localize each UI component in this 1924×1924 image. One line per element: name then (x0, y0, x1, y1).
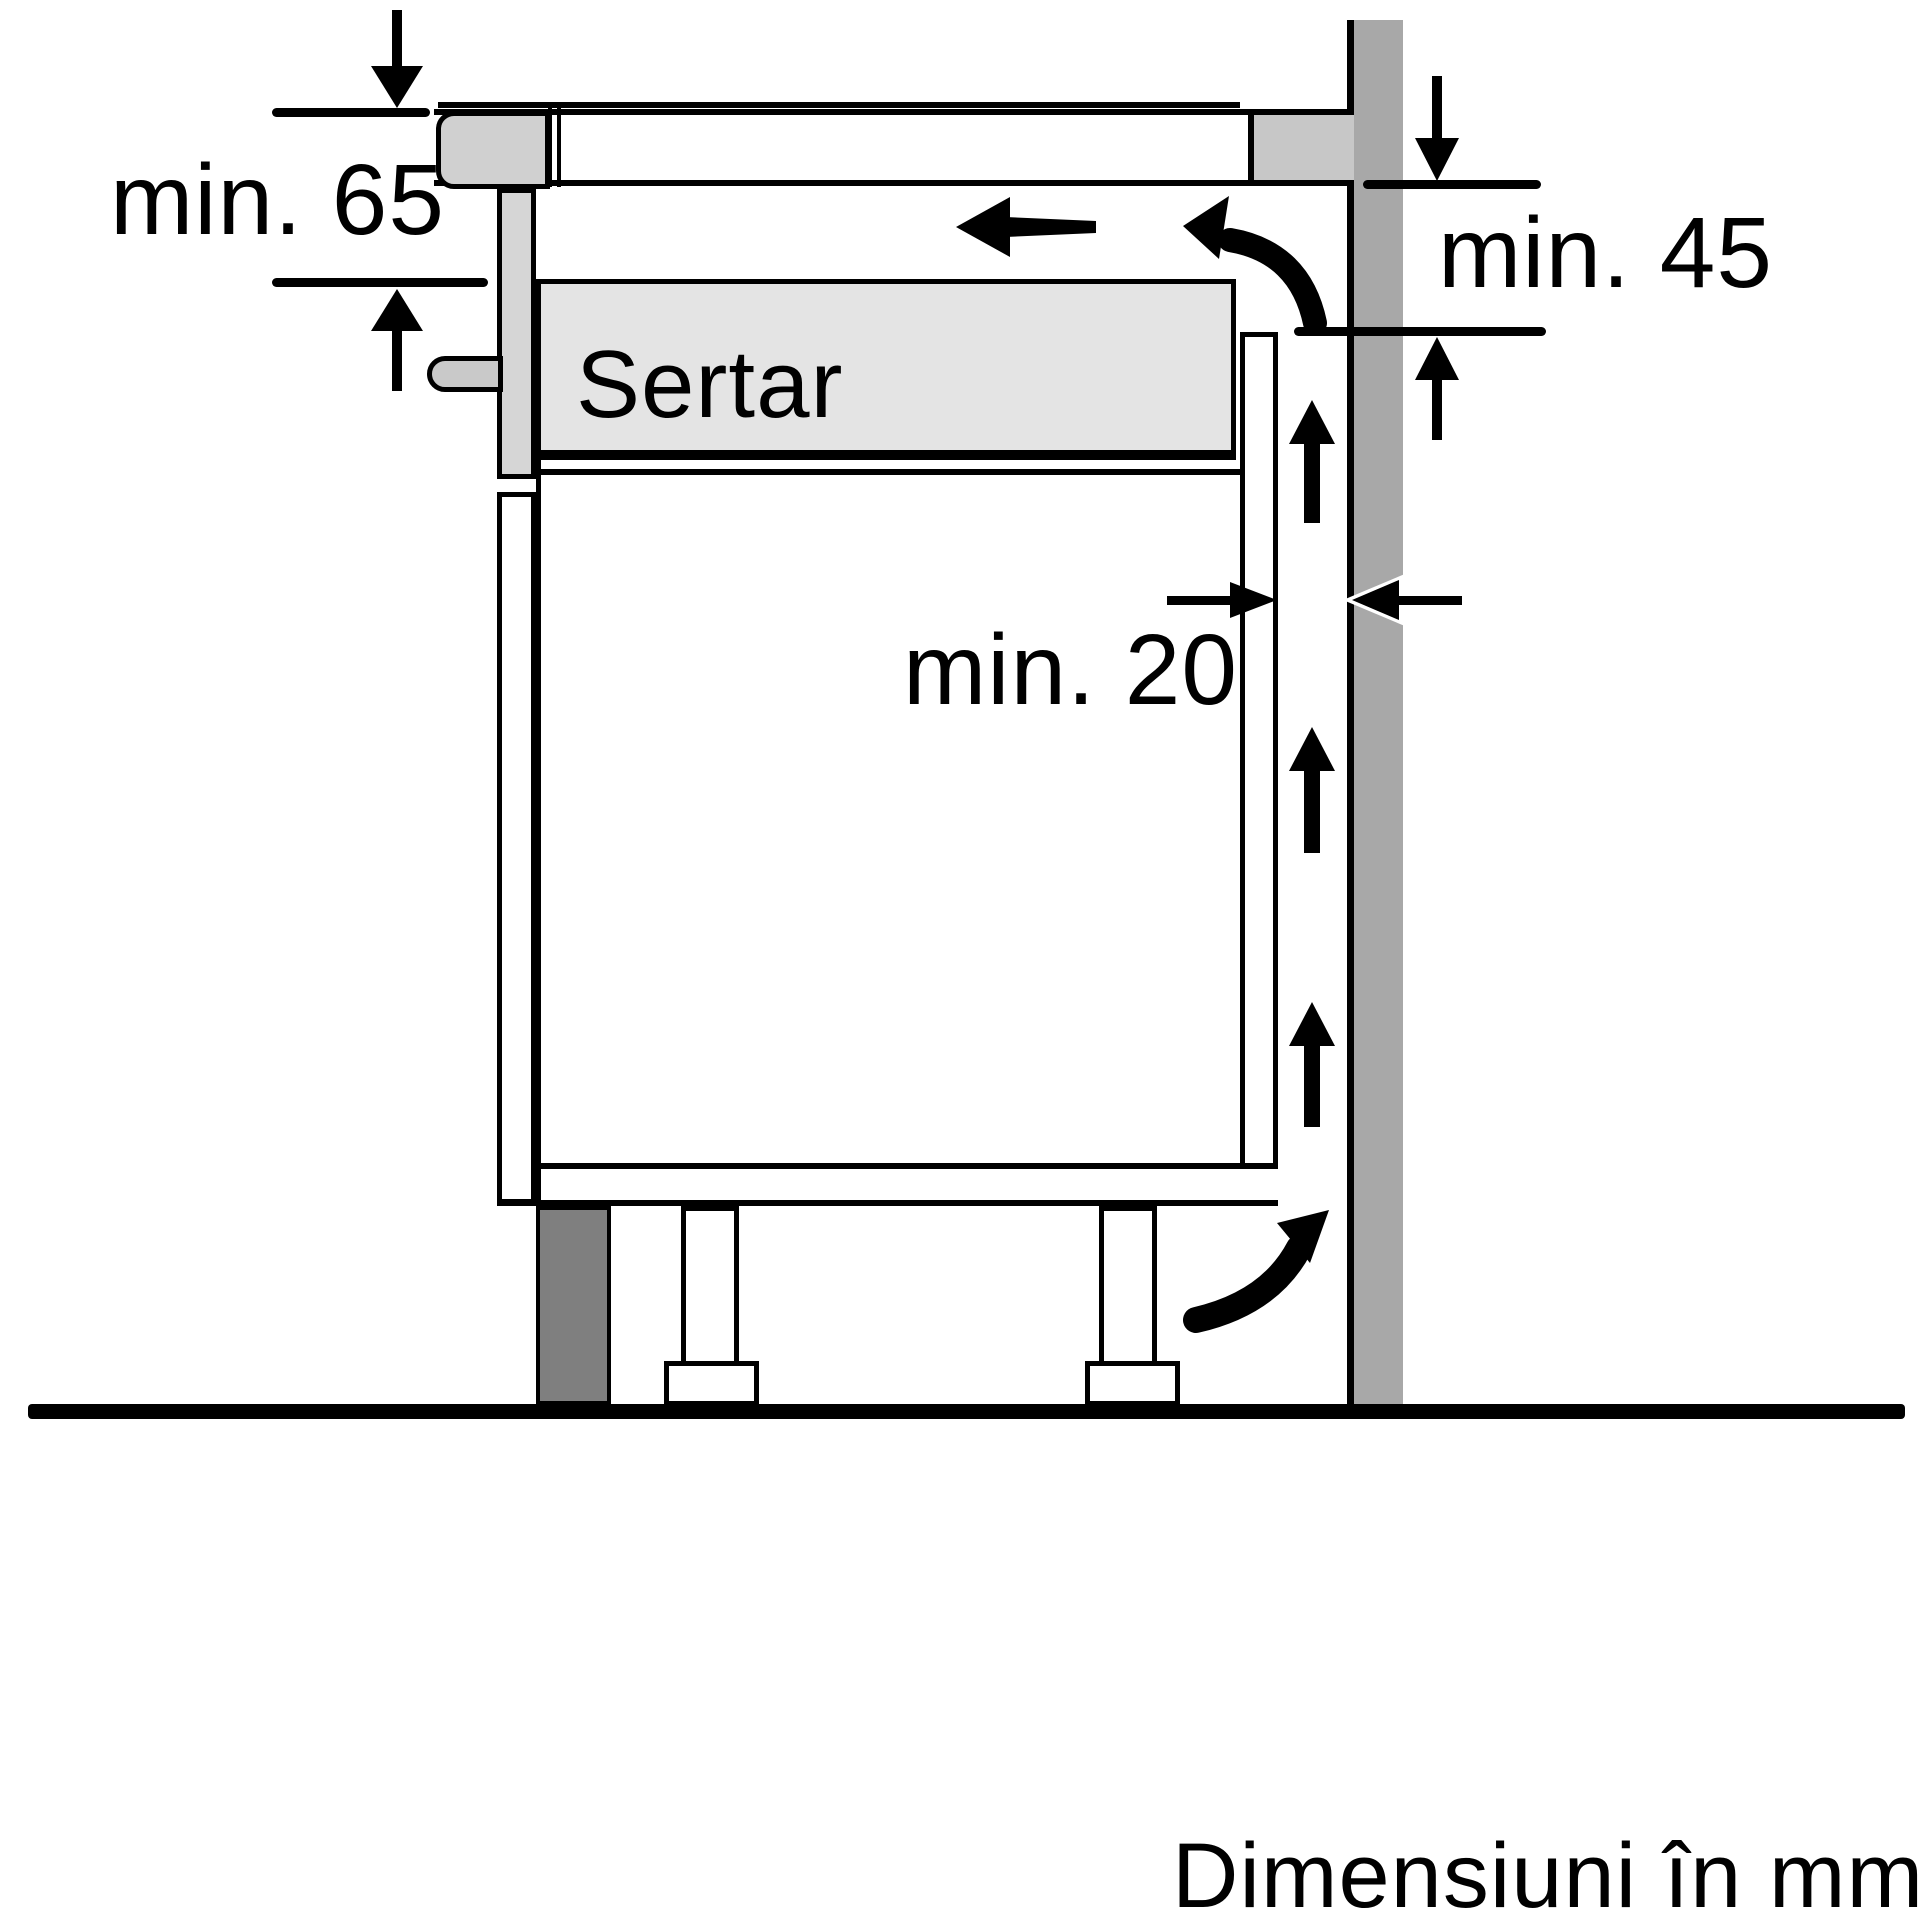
cabinet-front-line (536, 453, 541, 1206)
hob-cutout-line (548, 103, 552, 187)
drawer-handle (427, 356, 503, 392)
drawer-rail-line (536, 469, 1245, 475)
cabinet-leg (1099, 1206, 1157, 1367)
dimension-line (272, 108, 430, 117)
cabinet-leg-foot (1085, 1361, 1180, 1406)
left-arrow-icon (956, 197, 1096, 257)
hob-front-trim (436, 111, 550, 189)
installation-diagram: Sertar min. 65 min. 45 min. 20 Dimensiun… (0, 0, 1924, 1924)
down-arrow-icon (371, 10, 423, 108)
airflow-up-arrow-icon (1289, 1002, 1335, 1127)
cabinet-back-panel-top (1240, 332, 1278, 337)
airflow-up-arrow-icon (1289, 400, 1335, 523)
cabinet-side-panel-upper (497, 188, 536, 479)
floor-line (28, 1404, 1905, 1419)
cabinet-back-panel-line (1240, 332, 1245, 1169)
wall (1354, 20, 1403, 1406)
plinth-block (536, 1206, 611, 1405)
cabinet-leg (681, 1206, 739, 1367)
cabinet-side-panel-lower (497, 492, 536, 1204)
airflow-up-arrow-icon (1289, 727, 1335, 853)
cabinet-leg-foot (664, 1361, 759, 1406)
units-note: Dimensiuni în mm (1172, 1830, 1924, 1922)
up-arrow-icon (371, 289, 423, 391)
dimension-label-min65: min. 65 (110, 150, 445, 250)
cabinet-bottom-line (497, 1200, 1278, 1206)
drawer-rail-line (536, 455, 1236, 460)
dimension-label-min45: min. 45 (1438, 203, 1773, 303)
dimension-line (272, 278, 488, 287)
wall-edge-line (1347, 20, 1354, 1406)
worktop (434, 109, 1353, 186)
drawer-label: Sertar (576, 337, 843, 433)
dimension-line (1363, 180, 1541, 189)
down-arrow-icon (1415, 76, 1459, 181)
curved-airflow-arrow-icon (1196, 1210, 1329, 1320)
dimension-label-min20: min. 20 (903, 620, 1238, 720)
up-arrow-icon (1415, 337, 1459, 440)
dimension-line (1294, 327, 1546, 336)
cabinet-back-panel-line (1273, 332, 1278, 1169)
cabinet-bottom-line (536, 1163, 1278, 1169)
hob-cutout-line (557, 103, 561, 187)
right-arrow-icon (1167, 582, 1277, 618)
worktop-rear-section (1248, 109, 1354, 186)
